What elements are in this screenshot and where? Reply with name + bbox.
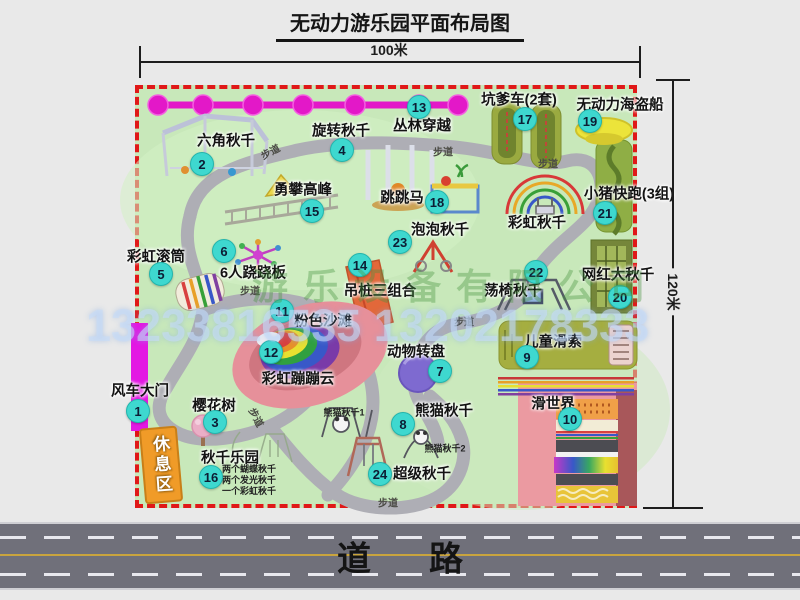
label-six-seesaw: 6人跷跷板 [220, 262, 286, 283]
page-title: 无动力游乐园平面布局图 [276, 7, 524, 42]
badge-21: 21 [593, 201, 617, 225]
swing-park-note-2: 两个发光秋千 [222, 475, 276, 486]
badge-16: 16 [199, 465, 223, 489]
path-label-4: 步道 [240, 283, 260, 298]
label-panda-swing-1: 熊猫秋千1 [323, 406, 364, 419]
road: 道路 [0, 522, 800, 590]
dimension-tick-top-right [639, 46, 641, 78]
dimension-label-height: 120米 [663, 268, 683, 315]
label-windmill-gate: 风车大门 [111, 380, 169, 401]
badge-3: 3 [203, 410, 227, 434]
swing-park-note-1: 两个蝴蝶秋千 [222, 464, 276, 475]
swing-park-notes: 两个蝴蝶秋千 两个发光秋千 一个彩虹秋千 [222, 464, 276, 497]
label-climbing-peak: 勇攀高峰 [274, 179, 332, 200]
badge-19: 19 [578, 109, 602, 133]
badge-8: 8 [391, 412, 415, 436]
dimension-line-top [140, 61, 640, 63]
badge-2: 2 [190, 152, 214, 176]
path-label-6: 步道 [378, 495, 398, 510]
label-panda-swing-2: 熊猫秋千2 [424, 442, 465, 455]
label-hanging-pile: 吊桩三组合 [344, 280, 417, 301]
label-pig-run: 小猪快跑(3组) [584, 183, 674, 204]
label-hexagon-swing: 六角秋千 [197, 130, 255, 151]
dimension-tick-right-top [656, 79, 690, 81]
badge-7: 7 [428, 359, 452, 383]
badge-11: 11 [270, 299, 294, 323]
badge-13: 13 [407, 95, 431, 119]
badge-20: 20 [608, 285, 632, 309]
road-label: 道路 [279, 532, 521, 581]
badge-1: 1 [126, 399, 150, 423]
label-rainbow-swing: 彩虹秋千 [508, 212, 566, 233]
badge-5: 5 [149, 262, 173, 286]
park-layout-map: 无动力游乐园平面布局图 100米 120米 [0, 0, 800, 600]
badge-4: 4 [330, 138, 354, 162]
label-big-swing: 网红大秋千 [582, 264, 655, 285]
label-super-swing: 超级秋千 [393, 463, 451, 484]
badge-10: 10 [558, 407, 582, 431]
badge-6: 6 [212, 239, 236, 263]
dimension-tick-right-bottom [643, 507, 703, 509]
badge-23: 23 [388, 230, 412, 254]
label-jump-horse: 跳跳马 [380, 187, 424, 208]
label-kengdie-car: 坑爹车(2套) [481, 89, 557, 110]
badge-22: 22 [524, 260, 548, 284]
badge-18: 18 [425, 190, 449, 214]
badge-9: 9 [515, 345, 539, 369]
badge-12: 12 [259, 340, 283, 364]
badge-24: 24 [368, 462, 392, 486]
path-label-3: 步道 [538, 156, 558, 171]
badge-14: 14 [348, 253, 372, 277]
badge-15: 15 [300, 199, 324, 223]
label-rainbow-cloud: 彩虹蹦蹦云 [262, 368, 335, 389]
path-label-2: 步道 [433, 144, 453, 159]
path-label-5: 步道 [454, 314, 474, 329]
badge-17: 17 [513, 107, 537, 131]
swing-park-note-3: 一个彩虹秋千 [222, 486, 276, 497]
dimension-label-width: 100米 [365, 40, 412, 60]
label-pink-beach: 粉色沙滩 [294, 310, 352, 331]
label-panda-swing: 熊猫秋千 [415, 400, 473, 421]
rest-area-label: 休息区 [146, 434, 175, 496]
dimension-tick-top-left [139, 46, 141, 78]
label-bubble-swing: 泡泡秋千 [411, 219, 469, 240]
